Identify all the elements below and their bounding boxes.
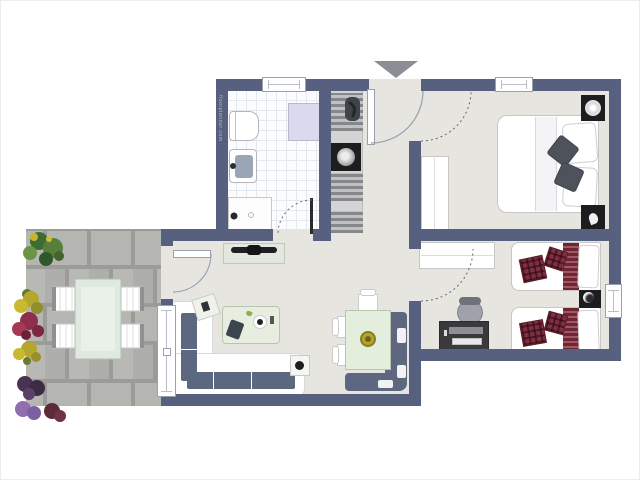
bowl-center — [257, 319, 263, 325]
kitchen-cabinet-3 — [331, 211, 363, 233]
maroon-plaid-pillow — [519, 255, 547, 283]
bench-cushion — [378, 380, 393, 388]
toilet-tank-line — [235, 112, 236, 140]
master-wardrobe — [421, 156, 449, 236]
cooktop-basin — [337, 148, 355, 166]
sofa-cushion-vertical — [181, 313, 197, 381]
cushion-seam — [213, 372, 214, 389]
pillow — [577, 310, 599, 354]
wall-living-top-right — [313, 229, 331, 241]
tv-center — [247, 245, 261, 255]
toilet — [229, 111, 259, 141]
wall-top-bedroom-right — [531, 79, 621, 91]
wall-top-kitchen — [304, 79, 369, 91]
wall-living-left-a — [161, 229, 173, 246]
dining-chair-top-back — [360, 289, 376, 296]
cushion-seam — [251, 372, 252, 389]
wall-living-top-left — [161, 229, 273, 241]
kitchen-cabinet-2 — [331, 173, 363, 201]
dining-chair-left-back — [332, 318, 339, 336]
pillow — [577, 245, 599, 289]
wall-living-bottom — [161, 394, 421, 406]
master-wardrobe-seam — [434, 158, 435, 234]
lamp — [583, 292, 594, 303]
terrace-window — [157, 305, 176, 397]
desk-keyboard — [452, 338, 482, 345]
coffee-table-remote — [270, 316, 274, 324]
entry-door-leaf — [367, 89, 375, 145]
dining-chair-left-back — [332, 346, 339, 364]
desk-monitor — [449, 327, 483, 334]
bed-runner — [535, 117, 557, 211]
floor-plan: floorplanner.com — [0, 0, 640, 480]
kitchen-sink-unit — [345, 97, 360, 121]
end-table-item — [295, 361, 304, 370]
outdoor-table — [75, 279, 121, 359]
wall-hall-right-upper — [409, 141, 421, 249]
washbasin-bowl — [235, 155, 253, 178]
washbasin-faucet — [230, 163, 236, 169]
cushion-seam — [181, 349, 197, 350]
watermark-text: floorplanner.com — [217, 95, 223, 142]
wall-right-upper — [609, 79, 621, 286]
master-bedroom-window — [495, 77, 533, 92]
bench-cushion — [397, 328, 406, 343]
wall-twin-bottom — [409, 349, 621, 361]
dining-chair-top — [358, 294, 378, 311]
bathroom-window — [262, 77, 306, 92]
wall-right-lower — [609, 316, 621, 361]
bowl-inner — [365, 336, 371, 342]
lamp — [585, 100, 601, 116]
wall-hall-right-lower — [409, 301, 421, 349]
sofa-cushion-horizontal — [187, 372, 295, 389]
twin-wardrobe-seam — [421, 255, 493, 256]
desk-item — [444, 330, 447, 336]
window-handle — [163, 348, 171, 356]
bench-cushion — [397, 365, 406, 378]
wall-top-bedroom-left — [421, 79, 497, 91]
twin-bedroom-window — [605, 284, 622, 318]
bathroom-wall-cabinet — [288, 103, 322, 141]
wall-bathroom-right — [319, 91, 331, 229]
terrace-door-leaf — [173, 250, 211, 258]
office-chair-back — [459, 297, 481, 305]
wall-bedroom-divider — [421, 229, 609, 241]
maroon-plaid-pillow — [519, 319, 547, 347]
